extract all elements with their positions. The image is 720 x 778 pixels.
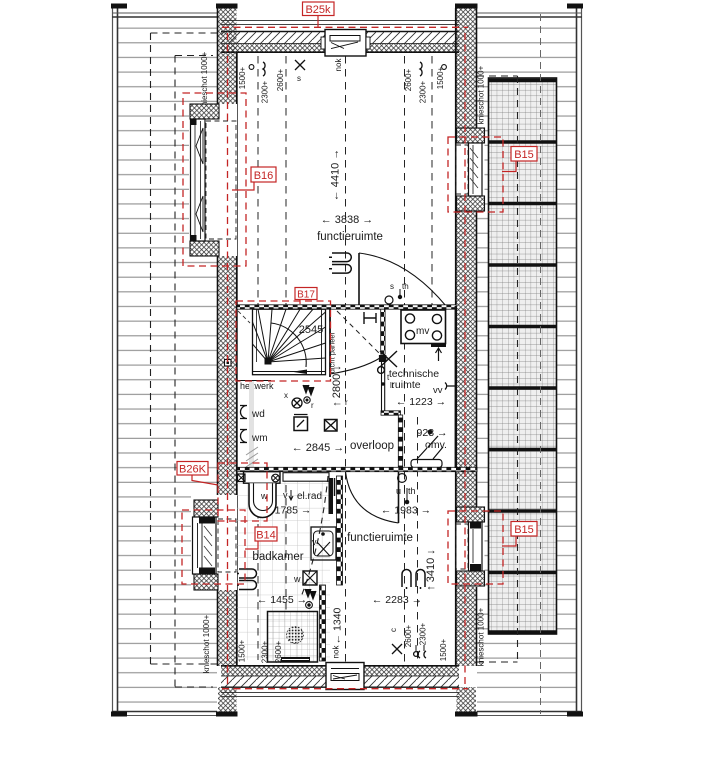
svg-text:← 1983 →: ← 1983 → xyxy=(381,505,431,517)
svg-text:knieschot 1000+: knieschot 1000+ xyxy=(477,65,486,124)
svg-text:el.rad: el.rad xyxy=(297,491,322,502)
svg-text:r: r xyxy=(311,401,314,410)
svg-text:1500+: 1500+ xyxy=(238,66,247,89)
svg-text:1500+: 1500+ xyxy=(439,638,448,661)
svg-text:omv.: omv. xyxy=(425,439,447,451)
svg-text:v: v xyxy=(312,537,317,547)
svg-text:knieschot 1000+: knieschot 1000+ xyxy=(477,607,486,666)
svg-text:← 1340: ← 1340 xyxy=(332,607,344,644)
svg-text:x: x xyxy=(284,391,288,400)
svg-text:← 2845 →: ← 2845 → xyxy=(292,442,345,454)
svg-text:2545: 2545 xyxy=(299,324,323,336)
svg-text:← 1223 →: ← 1223 → xyxy=(396,396,446,408)
svg-text:B17: B17 xyxy=(297,289,315,300)
svg-text:↑ 2800 ↓: ↑ 2800 ↓ xyxy=(331,365,343,407)
svg-text:v: v xyxy=(283,490,288,500)
svg-text:2600+: 2600+ xyxy=(276,68,285,91)
svg-text:↑ 3410 ↓: ↑ 3410 ↓ xyxy=(425,549,437,591)
svg-text:2300+: 2300+ xyxy=(419,80,428,103)
svg-text:s: s xyxy=(297,74,301,83)
svg-text:wd: wd xyxy=(251,409,265,420)
svg-text:B15: B15 xyxy=(514,524,534,536)
svg-text:← 4410 →: ← 4410 → xyxy=(330,149,342,202)
svg-text:wm: wm xyxy=(251,433,268,444)
svg-text:← 1455 →: ← 1455 → xyxy=(257,594,307,606)
svg-text:knieschot 1000+: knieschot 1000+ xyxy=(202,614,211,673)
svg-text:badkamer: badkamer xyxy=(252,551,303,563)
svg-text:ruimte: ruimte xyxy=(391,379,420,391)
svg-text:nok: nok xyxy=(334,58,343,72)
svg-text:overloop: overloop xyxy=(350,440,394,452)
svg-text:u l th: u l th xyxy=(396,486,416,496)
svg-text:nok: nok xyxy=(332,645,341,659)
svg-text:th: th xyxy=(402,282,409,291)
svg-text:1785 →: 1785 → xyxy=(275,505,312,517)
svg-text:2300+: 2300+ xyxy=(261,80,270,103)
svg-text:w: w xyxy=(293,574,301,584)
svg-text:c: c xyxy=(389,628,398,632)
svg-text:functieruimte: functieruimte xyxy=(347,532,413,544)
svg-text:2300+: 2300+ xyxy=(419,622,428,645)
svg-text:2600+: 2600+ xyxy=(404,68,413,91)
svg-text:r: r xyxy=(345,398,348,407)
svg-text:B16: B16 xyxy=(254,170,274,182)
svg-text:knieschot 1000+: knieschot 1000+ xyxy=(200,51,209,110)
svg-text:← 2283 →: ← 2283 → xyxy=(372,594,422,606)
svg-text:2600+: 2600+ xyxy=(274,640,283,663)
svg-text:functieruimte: functieruimte xyxy=(317,231,383,243)
svg-text:vv: vv xyxy=(433,385,443,396)
svg-text:1500+: 1500+ xyxy=(238,639,247,662)
svg-text:B25k: B25k xyxy=(305,4,331,16)
svg-text:mv: mv xyxy=(416,326,429,337)
svg-text:← 3838 →: ← 3838 → xyxy=(321,214,374,226)
svg-text:2600+: 2600+ xyxy=(404,624,413,647)
svg-text:B15: B15 xyxy=(514,149,534,161)
svg-text:hekwerk: hekwerk xyxy=(240,381,274,391)
svg-text:2300+: 2300+ xyxy=(261,640,270,663)
svg-text:B26K: B26K xyxy=(179,463,207,475)
svg-text:s: s xyxy=(390,282,394,291)
svg-text:B14: B14 xyxy=(256,530,276,542)
